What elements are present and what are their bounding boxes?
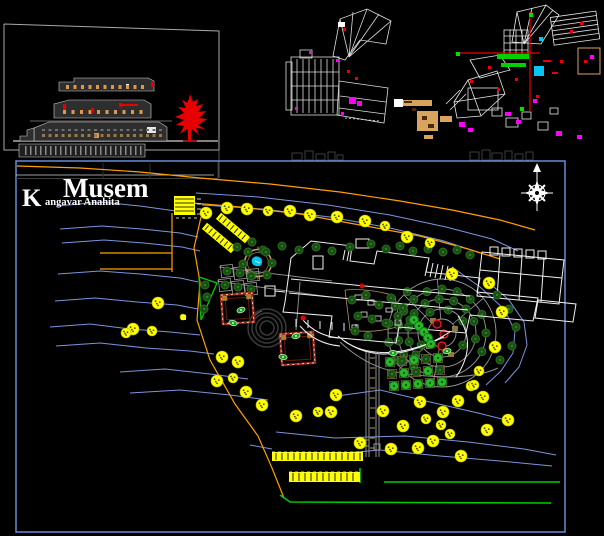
mark	[398, 100, 432, 106]
yellow-tree-icon	[221, 202, 233, 214]
dark-tree-icon	[462, 305, 470, 313]
yellow-tree-icon	[354, 437, 366, 449]
yellow-tree-icon	[241, 203, 253, 215]
plan-stripes	[291, 59, 339, 113]
dark-tree-icon	[405, 338, 413, 346]
courtyards	[221, 293, 315, 365]
detail-cyan-pool	[534, 37, 544, 76]
dark-tree-icon	[388, 370, 396, 378]
yellow-tree-icon	[284, 205, 296, 217]
dark-tree-icon	[396, 242, 404, 250]
stair-hatch	[343, 250, 453, 281]
border-fragments	[292, 150, 533, 160]
yellow-tree-icon	[412, 442, 424, 454]
panel-sketch-tan	[394, 48, 600, 139]
mark	[428, 124, 434, 128]
yellow-tree-icon	[232, 356, 244, 368]
yellow-tree-icon	[421, 414, 431, 424]
dark-tree-icon	[346, 243, 354, 251]
bright-tree-icon	[386, 358, 395, 367]
mark	[488, 66, 491, 69]
yellow-tree-icon	[437, 406, 449, 418]
mark	[349, 97, 356, 104]
yellow-tree-icon	[256, 399, 268, 411]
statue-icon	[278, 354, 287, 361]
dark-tree-icon	[435, 295, 443, 303]
dark-tree-icon	[244, 248, 252, 256]
yellow-tree-icon	[331, 211, 343, 223]
mark	[347, 70, 350, 73]
mark	[560, 60, 563, 63]
yellow-tree-icon	[228, 373, 238, 383]
parking-bars	[272, 452, 363, 482]
dark-tree-icon	[470, 317, 478, 325]
mark	[456, 52, 460, 56]
mark	[440, 116, 452, 122]
yellow-tree-icon	[455, 450, 467, 462]
dark-tree-icon	[438, 285, 446, 293]
orchard-grid	[386, 354, 447, 391]
bright-tree-icon	[427, 340, 436, 349]
mark	[122, 104, 138, 106]
yellow-tree-icon	[211, 375, 223, 387]
museum-building	[265, 239, 576, 377]
mark	[355, 77, 358, 80]
mark	[580, 22, 583, 25]
dark-tree-icon	[410, 295, 418, 303]
bright-tree-icon	[434, 354, 443, 363]
yellow-tree-icon	[330, 389, 342, 401]
yellow-tree-icon	[290, 410, 302, 422]
mark	[341, 112, 344, 115]
cad-canvas[interactable]: Musem K angavar Anahita	[0, 0, 604, 536]
yellow-tree-icon	[483, 277, 495, 289]
yellow-tree-icon	[304, 209, 316, 221]
garden-plot	[220, 264, 233, 277]
statue-icon	[228, 319, 237, 326]
mark	[63, 104, 66, 110]
yellow-tree-icon	[502, 414, 514, 426]
mark	[404, 101, 412, 103]
dark-tree-icon	[426, 308, 434, 316]
courtyard	[221, 293, 254, 324]
elevation-masses	[19, 78, 167, 157]
yellow-tree-icon	[385, 443, 397, 455]
dark-tree-icon	[368, 315, 376, 323]
dark-tree-icon	[399, 304, 407, 312]
dark-tree-icon	[262, 248, 270, 256]
dark-tree-icon	[478, 348, 486, 356]
hatched-ramps	[202, 213, 250, 254]
dark-tree-icon	[328, 247, 336, 255]
dark-tree-icon	[436, 366, 444, 374]
yellow-tree-icon	[425, 238, 435, 248]
bright-tree-icon	[410, 356, 419, 365]
bright-tree-icon	[426, 379, 435, 388]
magenta-marks	[295, 51, 594, 139]
plan-lower-wing	[337, 81, 388, 123]
sketch-white-block	[394, 99, 403, 107]
garden-plot	[218, 278, 231, 291]
mark	[501, 63, 526, 67]
yellow-tree-icon	[152, 297, 164, 309]
bright-tree-icon	[402, 381, 411, 390]
yellow-tree-icon	[436, 420, 446, 430]
dark-tree-icon	[295, 246, 303, 254]
dark-tree-icon	[459, 341, 467, 349]
mark	[412, 108, 416, 111]
yellow-tree-icon	[325, 406, 337, 418]
mark	[536, 95, 539, 98]
dark-tree-icon	[200, 305, 208, 313]
statue-icon	[236, 306, 246, 314]
mark	[577, 135, 582, 139]
dark-tree-icon	[453, 246, 461, 254]
plan-subtitle: angavar Anahita	[45, 197, 121, 208]
yellow-tree-icon	[216, 351, 228, 363]
red-tree-icon	[175, 94, 207, 141]
mark	[424, 135, 433, 139]
dark-tree-icon	[236, 269, 245, 278]
panel-elevations	[4, 24, 219, 178]
dark-tree-icon	[466, 251, 474, 259]
dark-tree-icon	[403, 288, 411, 296]
mark	[119, 103, 122, 107]
dark-tree-icon	[508, 342, 516, 350]
mark	[497, 54, 529, 59]
mark	[590, 55, 594, 59]
yellow-tree-icon	[313, 407, 323, 417]
mark	[552, 72, 558, 74]
column-ticks	[296, 319, 356, 332]
walk-paths	[217, 267, 498, 377]
dark-tree-icon	[223, 267, 232, 276]
mark	[584, 60, 587, 63]
garden-plot	[231, 280, 244, 293]
dark-tree-icon	[351, 327, 359, 335]
mark	[556, 131, 562, 136]
dark-tree-icon	[375, 301, 383, 309]
yellow-tree-icon	[427, 435, 439, 447]
dark-tree-icon	[382, 319, 390, 327]
dark-tree-icon	[263, 271, 271, 279]
panel-floorplan-small	[286, 9, 391, 123]
garden-plot	[233, 266, 246, 279]
dark-tree-icon	[409, 247, 417, 255]
dark-tree-icon	[203, 293, 211, 301]
dark-tree-icon	[234, 283, 243, 292]
dark-tree-icon	[466, 295, 474, 303]
dark-tree-icon	[354, 312, 362, 320]
mark	[529, 13, 533, 17]
yellow-tree-icon	[446, 268, 458, 280]
mark	[417, 111, 438, 131]
dark-tree-icon	[233, 243, 241, 251]
yellow-tree-icon	[147, 326, 157, 336]
north-compass-icon	[521, 163, 553, 211]
dark-tree-icon	[201, 281, 209, 289]
mark	[534, 66, 544, 76]
mark	[91, 108, 94, 113]
dark-tree-icon	[482, 329, 490, 337]
mark	[422, 116, 427, 120]
dark-tree-icon	[493, 291, 501, 299]
dark-tree-icon	[496, 356, 504, 364]
garden-plots	[218, 264, 259, 295]
louver-roof	[550, 11, 599, 45]
dark-tree-icon	[247, 272, 255, 280]
mark	[295, 107, 298, 110]
yellow-tree-icon	[445, 429, 455, 439]
dark-tree-icon	[382, 245, 390, 253]
dark-tree-icon	[422, 355, 430, 363]
dark-tree-icon	[387, 294, 395, 302]
dark-tree-icon	[398, 357, 406, 365]
yellow-tree-icon	[401, 231, 413, 243]
mark	[570, 30, 573, 33]
dark-tree-icon	[221, 281, 230, 290]
yellow-tree-icon	[200, 207, 212, 219]
hatched-building	[174, 196, 201, 218]
dark-tree-icon	[412, 368, 420, 376]
yellow-tree-icon	[452, 395, 464, 407]
parking-bar	[289, 472, 360, 482]
detail-green-markers	[456, 13, 533, 111]
dark-tree-icon	[439, 248, 447, 256]
yellow-tree-icon	[380, 221, 390, 231]
mark	[539, 37, 543, 41]
yellow-tree-icon	[240, 386, 252, 398]
yellow-tree-icon	[359, 215, 371, 227]
bright-tree-icon	[400, 369, 409, 378]
yellow-tree-icon	[397, 420, 409, 432]
yellow-tree-icon	[414, 396, 426, 408]
mark	[336, 59, 339, 62]
yellow-tree-icon	[263, 206, 273, 216]
mark	[309, 51, 312, 54]
plan-fan-roof	[333, 9, 391, 60]
yellow-tree-icon	[477, 391, 489, 403]
mark	[497, 88, 500, 91]
dark-tree-icon	[444, 306, 452, 314]
dark-tree-icon	[364, 332, 372, 340]
dark-tree-icon	[278, 242, 286, 250]
mark	[543, 60, 551, 62]
statue-icon	[389, 350, 397, 355]
mark	[459, 122, 465, 127]
mark	[151, 82, 154, 87]
mark	[515, 78, 518, 81]
mark	[343, 28, 346, 31]
mark	[533, 99, 537, 103]
mark	[505, 112, 511, 116]
mark	[470, 80, 473, 83]
detail-plan-outlines	[446, 5, 600, 130]
detail-green-bars	[497, 54, 529, 67]
yellow-tree-icon	[121, 328, 131, 338]
dark-tree-icon	[367, 240, 375, 248]
mark	[357, 101, 362, 106]
dark-tree-icon	[478, 310, 486, 318]
yellow-tree-icon	[481, 424, 493, 436]
pond-water	[252, 256, 262, 266]
parking-bar	[272, 452, 363, 461]
panel-siteplan-detail	[446, 5, 600, 130]
bright-tree-icon	[438, 378, 447, 387]
dark-tree-icon	[450, 297, 458, 305]
yellow-tree-icon	[469, 380, 479, 390]
plan-subtitle-initial: K	[22, 185, 42, 212]
dark-tree-icon	[248, 238, 256, 246]
dark-tree-icon	[512, 323, 520, 331]
dark-tree-icon	[239, 260, 247, 268]
bright-tree-icon	[414, 380, 423, 389]
dark-tree-icon	[362, 291, 370, 299]
mark	[516, 120, 521, 124]
bright-tree-icon	[424, 367, 433, 376]
dark-tree-icon	[348, 296, 356, 304]
dark-tree-icon	[268, 259, 276, 267]
dark-tree-icon	[312, 243, 320, 251]
bright-tree-icon	[390, 382, 399, 391]
dark-tree-icon	[471, 335, 479, 343]
yellow-tree-icon	[496, 306, 508, 318]
dark-tree-icon	[394, 312, 402, 320]
yellow-tree-icon	[474, 366, 484, 376]
mark	[520, 107, 524, 111]
yellow-tree-icon	[377, 405, 389, 417]
main-siteplan: Musem K angavar Anahita	[16, 161, 576, 532]
yellow-tree-icon	[489, 341, 501, 353]
mark	[468, 128, 473, 132]
